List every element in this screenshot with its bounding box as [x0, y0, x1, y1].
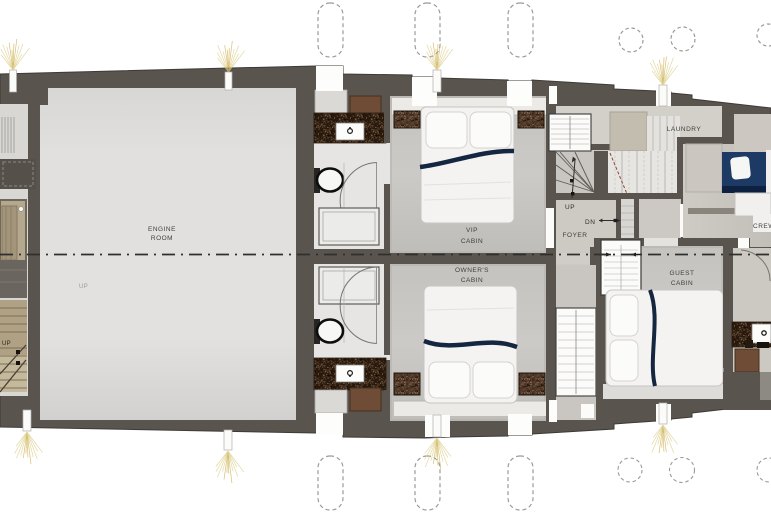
svg-text:DN: DN — [585, 219, 595, 226]
svg-text:OWNER'S: OWNER'S — [455, 267, 489, 274]
svg-text:UP: UP — [565, 204, 575, 211]
svg-text:LAUNDRY: LAUNDRY — [667, 126, 702, 133]
svg-text:CREW: CREW — [753, 223, 771, 230]
svg-text:ENGINE: ENGINE — [148, 226, 176, 233]
svg-text:UP: UP — [79, 284, 88, 290]
svg-text:CABIN: CABIN — [461, 277, 483, 284]
svg-text:UP: UP — [2, 341, 11, 347]
svg-text:VIP: VIP — [466, 227, 478, 234]
svg-text:FOYER: FOYER — [563, 232, 588, 239]
svg-text:CABIN: CABIN — [461, 238, 483, 245]
svg-text:GUEST: GUEST — [670, 270, 695, 277]
svg-text:ROOM: ROOM — [151, 235, 173, 242]
svg-text:CABIN: CABIN — [671, 280, 693, 287]
